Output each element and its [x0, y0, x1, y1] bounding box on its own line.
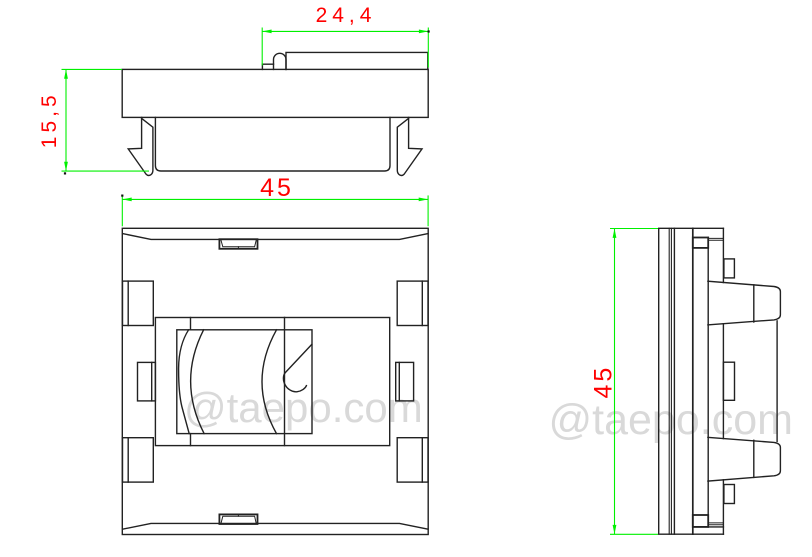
- svg-text:45: 45: [260, 174, 294, 202]
- svg-text:@taepo.com: @taepo.com: [549, 396, 793, 444]
- svg-text:@taepo.com: @taepo.com: [184, 384, 423, 431]
- svg-text:24,4: 24,4: [316, 4, 377, 27]
- svg-text:15,5: 15,5: [38, 91, 61, 148]
- svg-text:45: 45: [589, 365, 617, 399]
